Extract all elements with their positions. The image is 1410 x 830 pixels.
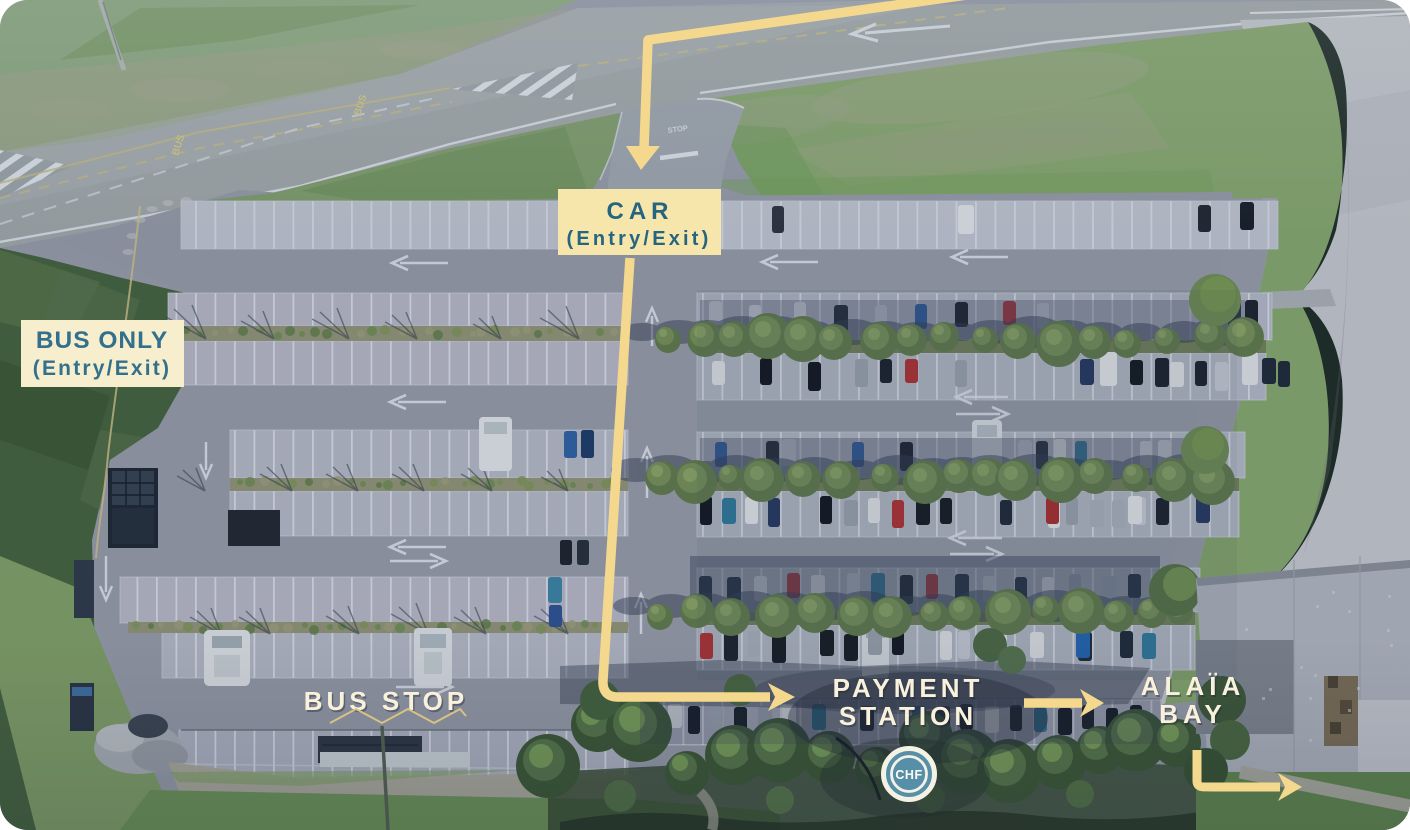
svg-text:(Entry/Exit): (Entry/Exit) xyxy=(566,228,711,250)
svg-text:BUS ONLY: BUS ONLY xyxy=(36,327,168,354)
svg-text:BAY: BAY xyxy=(1159,699,1227,729)
svg-text:(Entry/Exit): (Entry/Exit) xyxy=(33,357,171,380)
svg-text:BUS STOP: BUS STOP xyxy=(304,686,468,716)
svg-text:STATION: STATION xyxy=(839,701,977,731)
svg-text:ALAÏA: ALAÏA xyxy=(1141,671,1245,701)
svg-text:CHF: CHF xyxy=(895,768,922,782)
svg-text:PAYMENT: PAYMENT xyxy=(833,673,984,703)
svg-text:CAR: CAR xyxy=(607,198,674,225)
